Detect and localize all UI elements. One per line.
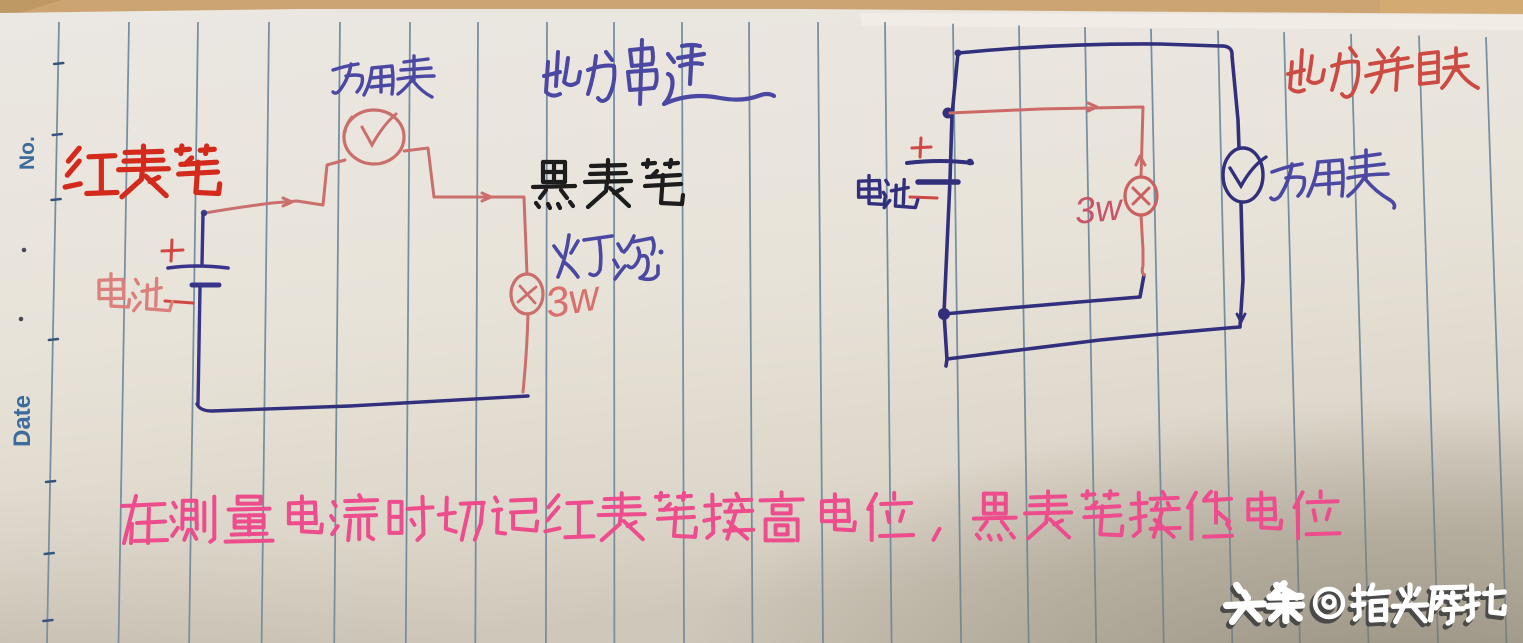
svg-text:No.: No. bbox=[16, 136, 39, 170]
svg-text:Date: Date bbox=[9, 395, 36, 447]
svg-text:3w: 3w bbox=[1073, 186, 1127, 232]
svg-text:3w: 3w bbox=[541, 271, 605, 327]
